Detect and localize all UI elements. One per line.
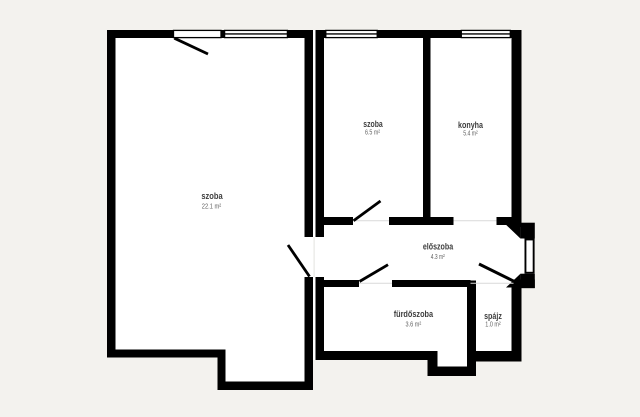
svg-text:fürdőszoba: fürdőszoba (394, 309, 434, 319)
svg-text:4.3 m²: 4.3 m² (431, 252, 445, 261)
svg-text:3.6 m²: 3.6 m² (406, 319, 422, 328)
svg-text:22.1 m²: 22.1 m² (202, 201, 222, 210)
svg-text:5.4 m²: 5.4 m² (463, 129, 478, 138)
svg-text:előszoba: előszoba (423, 241, 454, 251)
svg-text:1.0 m²: 1.0 m² (485, 320, 501, 329)
svg-text:6.5 m²: 6.5 m² (365, 128, 380, 137)
svg-text:szoba: szoba (201, 191, 223, 201)
